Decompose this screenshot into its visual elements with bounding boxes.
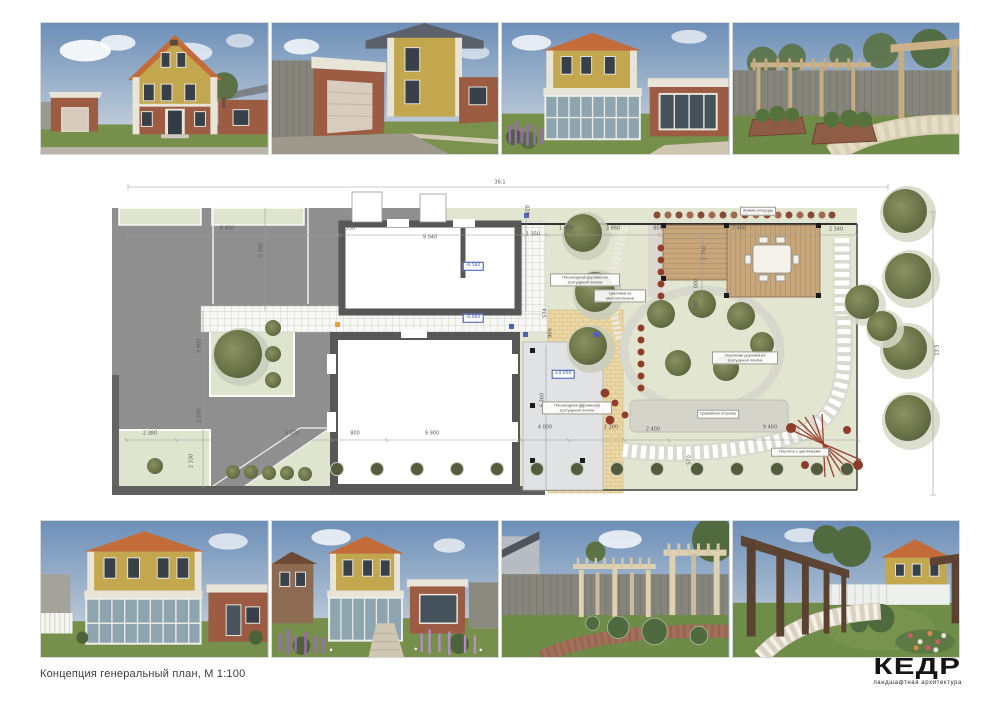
label-pergola: Пергола с цветниками: [771, 448, 829, 457]
flowerbeds-scene: [272, 521, 499, 657]
dim-label: 4 640: [517, 253, 522, 267]
dim-label: 2 750: [703, 246, 708, 260]
render-strip-bottom: [40, 520, 960, 658]
dim-label: 900: [549, 328, 554, 338]
presentation-sheet: 36.1 13.5 8 450 1 550 9 040 1 350 1 600 …: [0, 0, 1000, 702]
logo-wordmark: КЕДР: [858, 655, 978, 678]
render-garage-entrance-view: [271, 22, 500, 155]
dim-label: 574: [544, 308, 549, 318]
dim-label: 610: [527, 205, 532, 215]
label-gravel: Гравийная отсыпка: [697, 410, 739, 419]
dim-label: 7 400: [732, 227, 746, 232]
dim-label: 1 200: [604, 426, 618, 431]
dim-label: 1 600: [559, 227, 573, 232]
dim-label: 4 000: [538, 426, 552, 431]
render-strip-top: [40, 22, 960, 155]
dim-label: 1 550: [341, 227, 355, 232]
label-walk-top: Пешеходная дорожка из тротуарной плитки: [550, 273, 620, 286]
sheet-caption: Концепция генеральный план, М 1:100: [40, 668, 245, 680]
render-lawn-pergolas-view: [501, 520, 730, 658]
dim-label: 3 900: [198, 339, 203, 353]
pergola-walk-scene: [733, 23, 960, 154]
pergola-alley-scene: [733, 521, 960, 657]
dim-label: 6 070: [285, 432, 299, 437]
dim-label: 8 450: [220, 227, 234, 232]
company-logo: КЕДР ландшафтная архитектура: [873, 655, 962, 686]
label-hedge: Живая изгородь: [740, 207, 776, 216]
level-marker-terrace: ±0.000: [552, 370, 575, 379]
dim-label: 1 000: [695, 279, 700, 293]
dim-label: 5 390: [260, 243, 265, 257]
render-garden-pergola-walk: [732, 22, 961, 155]
dim-label: 600: [695, 300, 700, 310]
level-marker-garage: -0.560: [463, 262, 484, 271]
dim-label: 3 860: [606, 227, 620, 232]
label-walk-bottom: Пешеходная дорожка из тротуарной плитки: [542, 401, 612, 414]
dim-label: 2 380: [143, 432, 157, 437]
dim-label: 2 340: [829, 228, 843, 233]
pergolas-scene: [502, 521, 729, 657]
render-veranda-flowerbeds-view: [271, 520, 500, 658]
label-flowers: Цветники из многолетников: [594, 289, 646, 302]
conservatory-scene: [502, 23, 729, 154]
garden-table: [753, 245, 791, 273]
site-plan: 36.1 13.5 8 450 1 550 9 040 1 350 1 600 …: [105, 178, 955, 508]
dim-label: 570: [688, 455, 693, 465]
level-marker-path: -0.060: [463, 314, 484, 323]
dim-label: 800: [653, 227, 663, 232]
logo-tagline: ландшафтная архитектура: [873, 680, 962, 686]
rear-elevation-scene: [41, 521, 268, 657]
dim-label: 800: [350, 432, 360, 437]
render-rear-facade-conservatory: [501, 22, 730, 155]
render-rear-elevation-veranda: [40, 520, 269, 658]
dim-label: 9 900: [425, 432, 439, 437]
dim-label: 9 400: [763, 426, 777, 431]
dim-label: 1 350: [526, 233, 540, 238]
dim-label: 2 500: [198, 409, 203, 423]
main-house: [327, 329, 518, 488]
dim-label: 920: [517, 461, 522, 471]
dim-label: 13.5: [936, 344, 941, 355]
render-pergola-alley-path: [732, 520, 961, 658]
label-main-path: Основная дорожка из тротуарной плитки: [712, 351, 778, 364]
dim-label: 2 400: [646, 428, 660, 433]
dim-label: 36.1: [494, 181, 505, 186]
render-house-front-view: [40, 22, 269, 155]
garage-scene: [272, 23, 499, 154]
house-front-scene: [41, 23, 268, 154]
dim-label: 9 040: [423, 236, 437, 241]
dim-label: 2 330: [190, 454, 195, 468]
